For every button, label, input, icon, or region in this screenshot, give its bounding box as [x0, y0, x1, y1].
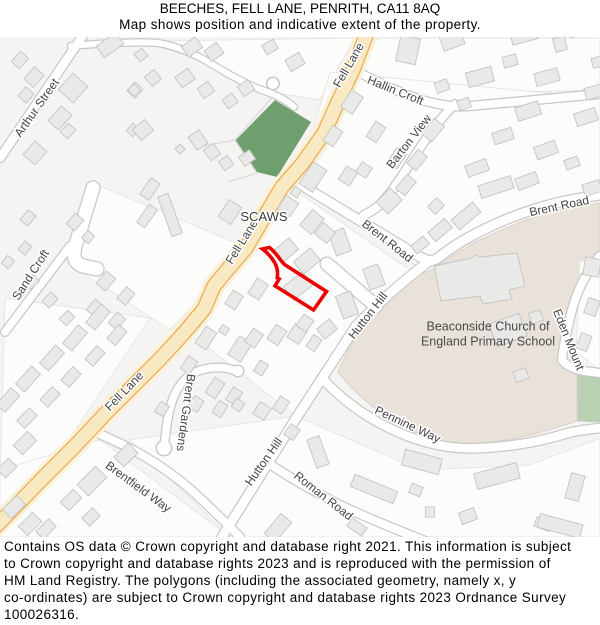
svg-text:Beaconside Church of: Beaconside Church of: [427, 320, 551, 334]
svg-text:England Primary School: England Primary School: [421, 335, 555, 349]
svg-text:SCAWS: SCAWS: [240, 209, 288, 224]
